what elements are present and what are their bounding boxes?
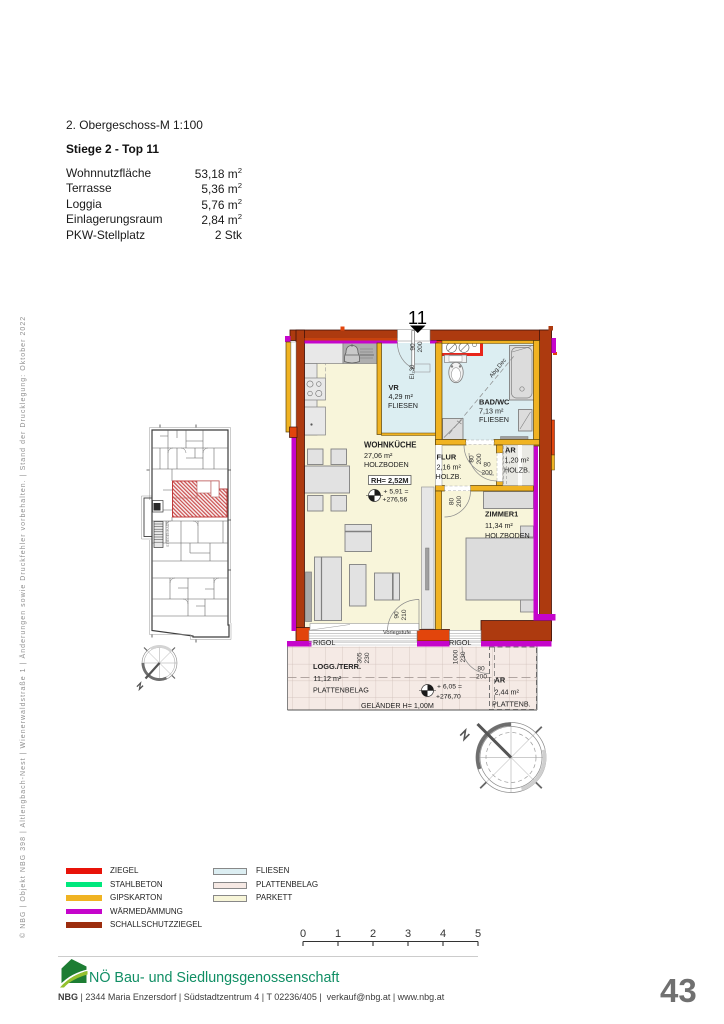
svg-text:AR: AR <box>495 676 506 685</box>
svg-text:EI₂30: EI₂30 <box>410 364 416 379</box>
svg-text:0: 0 <box>300 928 306 940</box>
svg-text:+ 5,91 =: + 5,91 = <box>384 489 409 496</box>
svg-text:27,06 m²: 27,06 m² <box>364 451 393 460</box>
svg-text:11,34 m²: 11,34 m² <box>485 521 513 530</box>
svg-text:200: 200 <box>481 470 492 477</box>
svg-text:4: 4 <box>440 928 446 940</box>
svg-text:11: 11 <box>408 307 427 328</box>
svg-text:HOLZBODEN: HOLZBODEN <box>364 460 409 469</box>
svg-text:1000230: 1000230 <box>453 649 468 664</box>
svg-text:1: 1 <box>335 928 341 940</box>
svg-text:ZIMMER1: ZIMMER1 <box>485 510 518 519</box>
svg-text:LOGG./TERR.: LOGG./TERR. <box>313 662 361 671</box>
svg-text:11,12 m²: 11,12 m² <box>314 674 342 683</box>
svg-text:VR: VR <box>389 383 400 392</box>
svg-text:WOHNKÜCHE: WOHNKÜCHE <box>364 441 416 450</box>
svg-text:FLUR: FLUR <box>437 453 457 462</box>
svg-text:4,29 m²: 4,29 m² <box>389 392 414 401</box>
svg-text:200: 200 <box>476 674 487 681</box>
svg-text:+ 6,05 =: + 6,05 = <box>437 684 462 691</box>
svg-text:BAD/WC: BAD/WC <box>479 398 510 407</box>
svg-text:1,20 m²: 1,20 m² <box>505 456 530 465</box>
svg-text:PLATTENBELAG: PLATTENBELAG <box>313 686 369 695</box>
svg-text:5: 5 <box>475 928 481 940</box>
svg-text:FLIESEN: FLIESEN <box>388 401 418 410</box>
svg-text:RH= 2,52M: RH= 2,52M <box>371 476 409 485</box>
svg-text:RIGOL: RIGOL <box>313 638 335 647</box>
svg-text:2: 2 <box>370 928 376 940</box>
svg-text:AR: AR <box>505 446 516 455</box>
svg-text:80: 80 <box>477 666 485 673</box>
svg-text:FLIESEN: FLIESEN <box>479 415 509 424</box>
svg-text:2,44 m²: 2,44 m² <box>495 688 520 697</box>
svg-text:2,16 m²: 2,16 m² <box>437 463 462 472</box>
svg-text:+276,56: +276,56 <box>383 497 408 504</box>
svg-text:PLATTENB.: PLATTENB. <box>492 700 531 709</box>
svg-text:3: 3 <box>405 928 411 940</box>
svg-text:RIGOL: RIGOL <box>449 638 471 647</box>
svg-text:+276,70: +276,70 <box>436 694 461 701</box>
svg-text:305230: 305230 <box>357 652 372 663</box>
svg-text:Vorlegstufe: Vorlegstufe <box>383 630 411 636</box>
svg-text:80: 80 <box>483 462 491 469</box>
svg-text:HOLZB.: HOLZB. <box>436 472 462 481</box>
svg-text:STIEGENHAUS: STIEGENHAUS <box>166 521 170 547</box>
svg-text:HOLZB.: HOLZB. <box>504 466 530 475</box>
svg-text:HOLZBODEN: HOLZBODEN <box>485 531 530 540</box>
svg-text:GELÄNDER H= 1,00M: GELÄNDER H= 1,00M <box>361 701 434 710</box>
